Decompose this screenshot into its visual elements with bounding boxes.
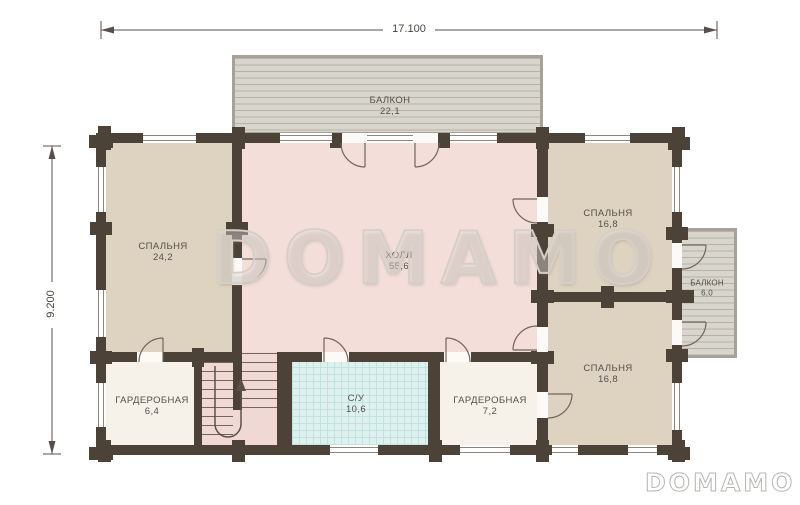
label-bedroom-bottom-right: СПАЛЬНЯ 16,8 — [583, 363, 632, 385]
stair-direction-arrow — [215, 366, 246, 437]
label-balcony-right: БАЛКОН 6,0 — [690, 279, 724, 298]
dimension-lines — [43, 21, 717, 454]
door-arc — [341, 143, 365, 167]
room-area: 24,2 — [138, 252, 187, 263]
room-area: 7,2 — [453, 406, 527, 417]
room-area: 6,4 — [115, 406, 189, 417]
room-area: 16,8 — [583, 219, 632, 230]
door-arc — [324, 338, 348, 362]
door-arc — [242, 259, 266, 283]
room-name: СПАЛЬНЯ — [583, 363, 632, 374]
room-name: СПАЛЬНЯ — [138, 241, 187, 252]
room-name: С/У — [346, 393, 366, 404]
door-arc — [446, 338, 470, 362]
room-area: 22,1 — [370, 106, 411, 117]
room-name: ГАРДЕРОБНАЯ — [115, 395, 189, 406]
room-name: БАЛКОН — [690, 279, 724, 289]
label-hall: ХОЛЛ 55,6 — [385, 250, 412, 272]
room-name: БАЛКОН — [370, 95, 411, 106]
label-wardrobe-left: ГАРДЕРОБНАЯ 6,4 — [115, 395, 189, 417]
door-arc — [513, 199, 537, 223]
label-bedroom-top-right: СПАЛЬНЯ 16,8 — [583, 208, 632, 230]
door-arc — [513, 326, 537, 350]
room-area: 10,6 — [346, 404, 366, 415]
room-area: 16,8 — [583, 374, 632, 385]
room-name: СПАЛЬНЯ — [583, 208, 632, 219]
dimension-height-label: 9.200 — [45, 286, 57, 322]
label-bathroom: С/У 10,6 — [346, 393, 366, 415]
label-bedroom-left: СПАЛЬНЯ 24,2 — [138, 241, 187, 263]
room-area: 6,0 — [690, 288, 724, 298]
door-arc — [682, 245, 706, 269]
room-area: 55,6 — [385, 261, 412, 272]
door-arc — [415, 143, 439, 167]
label-balcony-top: БАЛКОН 22,1 — [370, 95, 411, 117]
door-arc — [682, 322, 706, 346]
room-name: ХОЛЛ — [385, 250, 412, 261]
label-wardrobe-right: ГАРДЕРОБНАЯ 7,2 — [453, 395, 527, 417]
door-arc — [139, 338, 163, 362]
room-name: ГАРДЕРОБНАЯ — [453, 395, 527, 406]
door-arc — [548, 394, 572, 418]
dimension-width-label: 17.100 — [388, 23, 430, 35]
floor-plan: 17.100 9.200 БАЛКОН 22,1 СПАЛЬНЯ 24,2 ХО… — [0, 0, 800, 505]
